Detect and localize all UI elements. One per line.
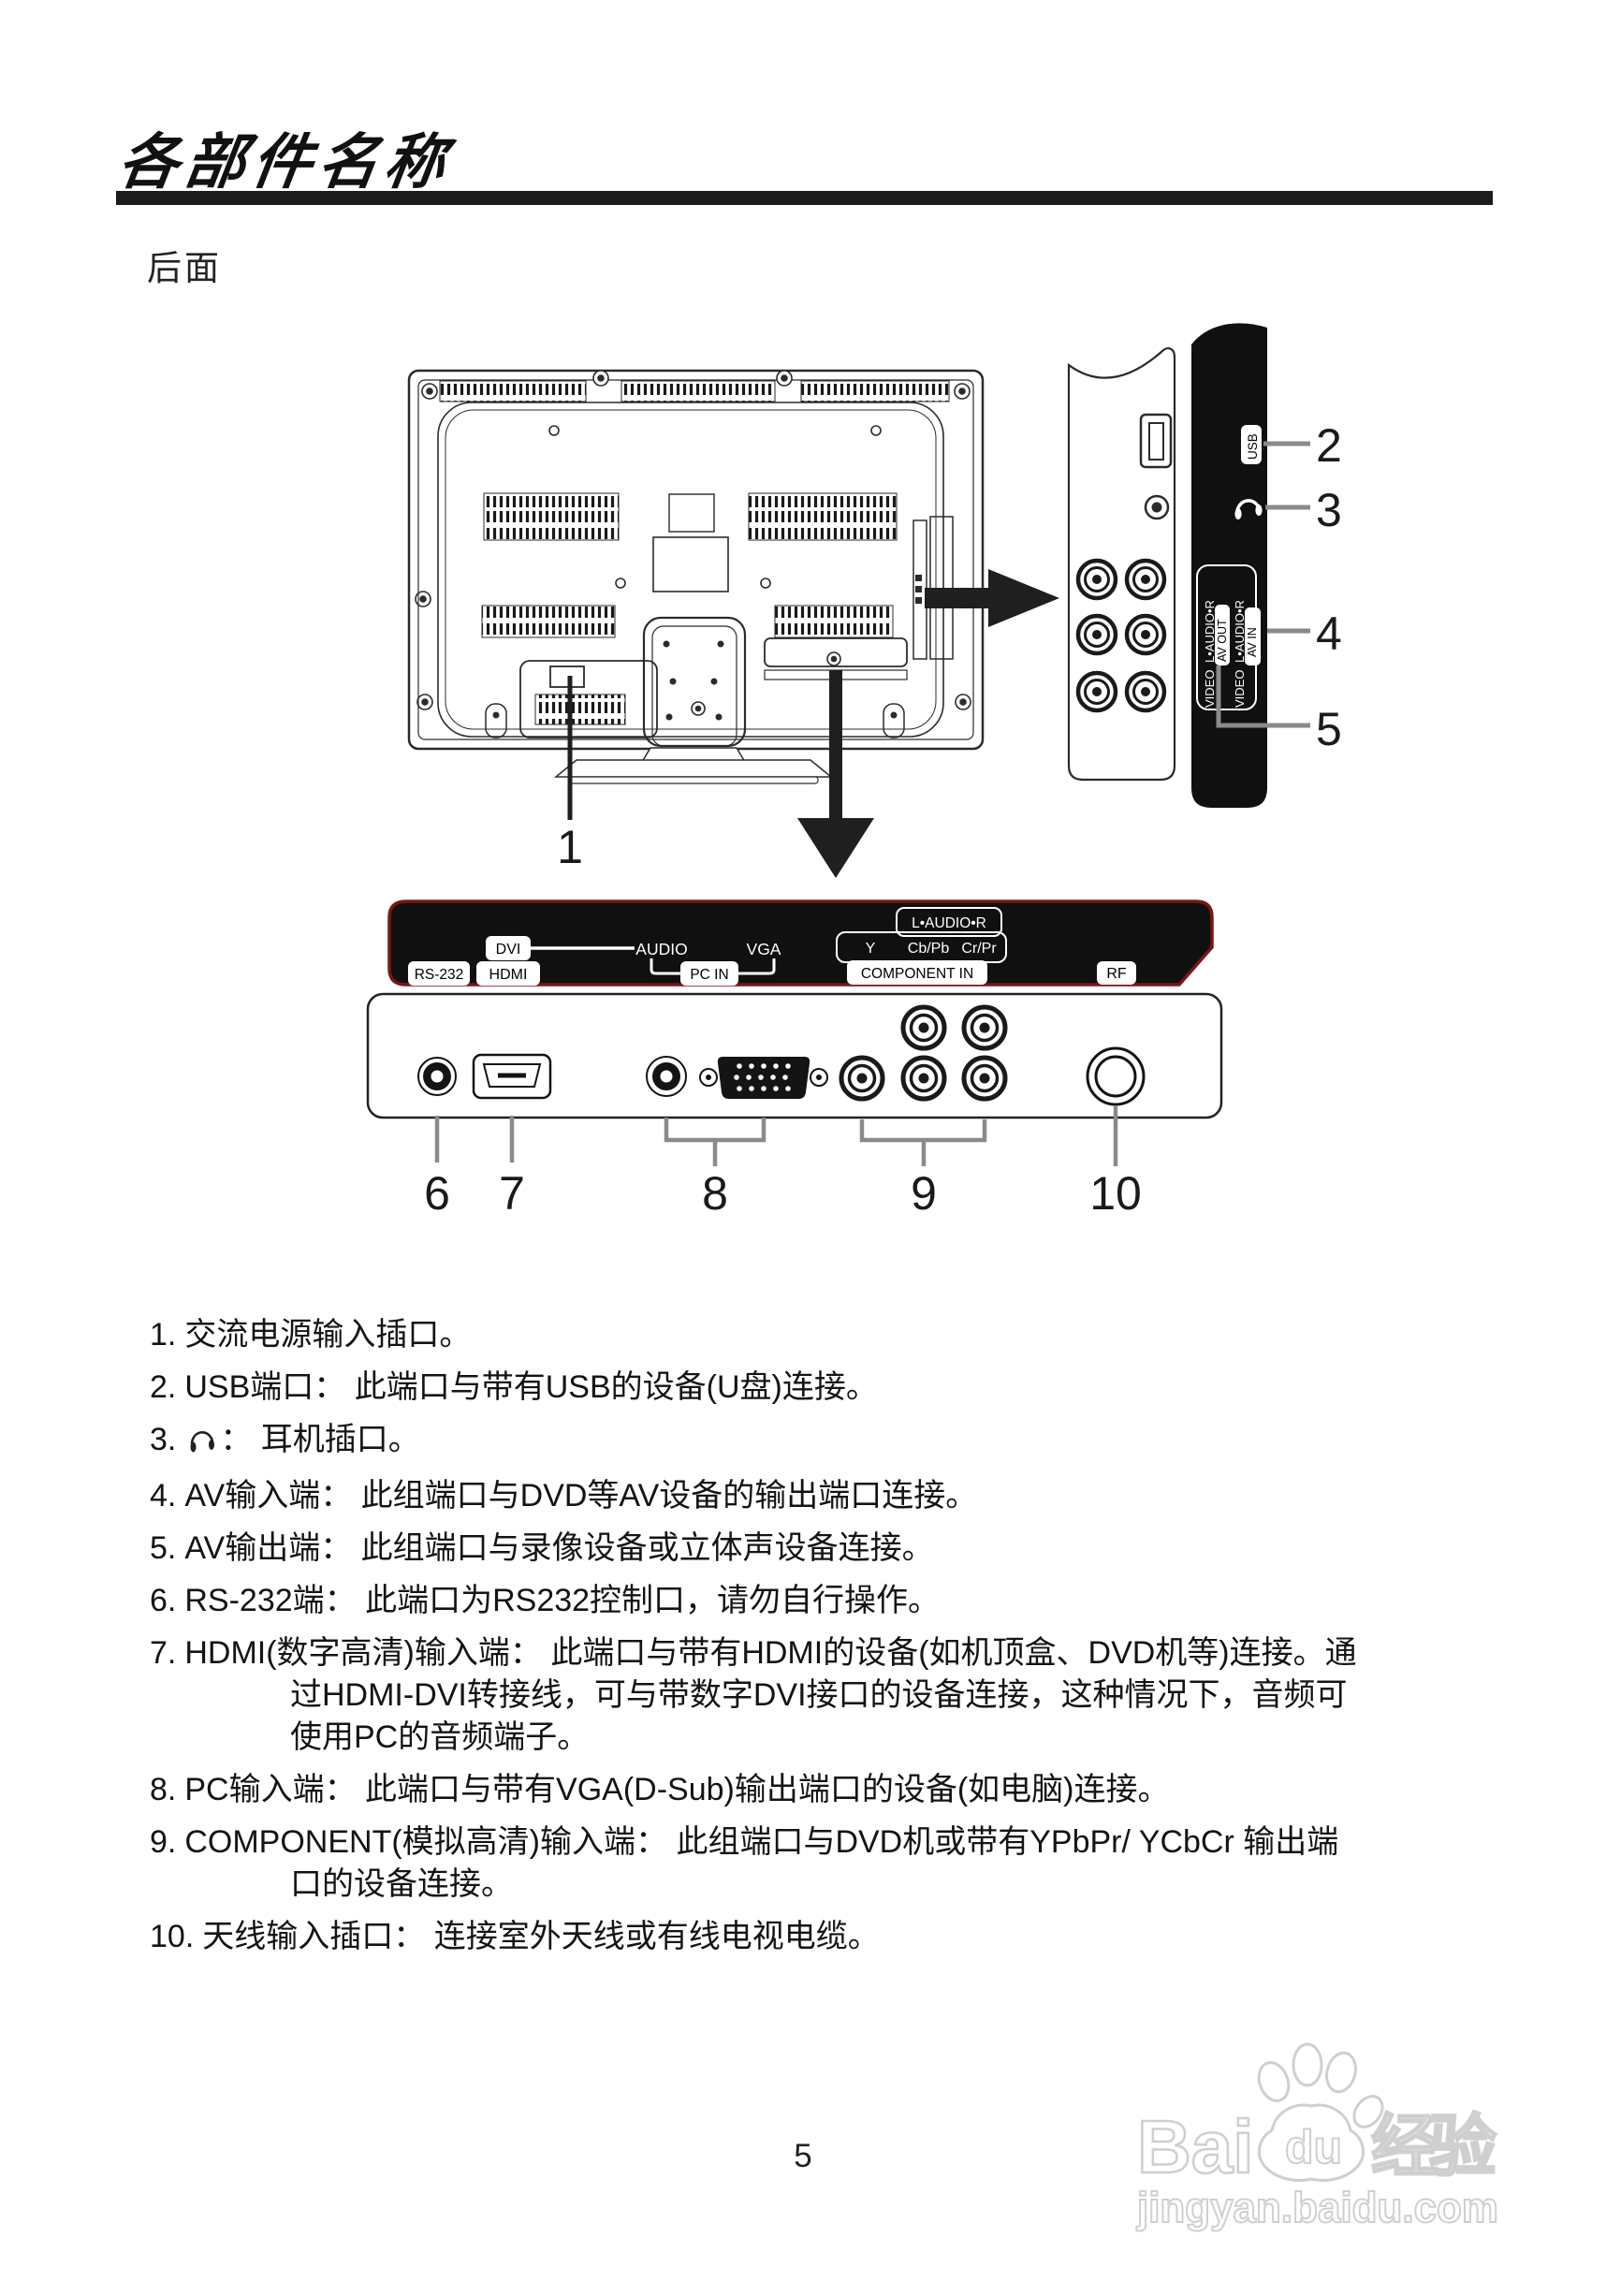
list-item: 9.COMPONENT(模拟高清)输入端： 此组端口与DVD机或带有YPbPr/… [150,1821,1535,1906]
dvi-label: DVI [496,942,521,958]
headphone-icon [188,1420,216,1465]
callout-8: 8 [702,1167,728,1220]
callout-2: 2 [1316,419,1342,472]
av-out-audio-label: L•AUDIO•R [1203,600,1217,663]
av-in-audio-label: L•AUDIO•R [1233,600,1247,663]
list-item: 6.RS-232端： 此端口为RS232控制口，请勿自行操作。 [150,1580,1535,1622]
list-item: 3.： 耳机插口。 [150,1419,1535,1465]
title-rule [116,191,1493,205]
list-item: 4.AV输入端： 此组端口与DVD等AV设备的输出端口连接。 [150,1475,1535,1517]
watermark-bai: Bai [1137,2105,1254,2188]
watermark-du: du [1285,2121,1342,2173]
page-title: 各部件名称 [114,114,459,200]
rs232-label: RS-232 [415,967,464,983]
bottom-label-panel: RS-232 HDMI DVI AUDIO VGA PC IN L•AUDIO•… [389,901,1212,986]
tv-back-drawing [409,371,983,783]
component-audio-label: L•AUDIO•R [912,915,986,931]
component-in-label: COMPONENT IN [861,966,973,982]
list-item: 7.HDMI(数字高清)输入端： 此端口与带有HDMI的设备(如机顶盒、DVD机… [150,1632,1535,1759]
callout-1: 1 [557,821,583,873]
callout-4: 4 [1316,607,1342,660]
top-vent-grilles [440,381,949,402]
list-item: 5.AV输出端： 此组端口与录像设备或立体声设备连接。 [150,1528,1535,1570]
av-out-label: AV OUT [1216,619,1229,662]
hdmi-label: HDMI [489,967,528,983]
bottom-connector-panel: 6 7 8 9 10 [368,994,1221,1220]
callout-6: 6 [424,1167,450,1220]
page-number: 5 [775,2138,831,2175]
callout-5: 5 [1316,703,1342,755]
callout-3: 3 [1316,484,1342,536]
tv-stand [556,748,831,783]
callout-9: 9 [911,1167,937,1220]
watermark-url: jingyan.baidu.com [1136,2184,1498,2231]
av-in-video-label: VIDEO [1233,670,1247,708]
list-item: 10.天线输入插口： 连接室外天线或有线电视电缆。 [150,1916,1535,1958]
audio-label: AUDIO [635,940,687,958]
rear-panel-diagram: 1 USB [0,300,1606,1245]
pc-in-label: PC IN [690,967,728,983]
pc-audio-jack [647,1057,686,1096]
component-y-label: Y [866,941,876,957]
rs232-jack [418,1058,456,1095]
av-in-label: AV IN [1246,627,1259,657]
section-label-rear: 后面 [147,240,222,290]
av-out-video-label: VIDEO [1203,670,1217,708]
baidu-jingyan-watermark: Bai du 经验 jingyan.baidu.com [1135,2037,1543,2239]
watermark-cn: 经验 [1371,2110,1496,2185]
component-cb-label: Cb/Pb [908,941,950,957]
list-item: 8.PC输入端： 此端口与带有VGA(D-Sub)输出端口的设备(如电脑)连接。 [150,1769,1535,1811]
list-item: 2.USB端口： 此端口与带有USB的设备(U盘)连接。 [150,1367,1535,1409]
vga-label: VGA [747,940,781,958]
callout-10: 10 [1089,1167,1142,1220]
callout-7: 7 [499,1167,525,1220]
side-panel-detail: USB L•AUDIO•R VIDEO AV OUT L•AUDIO•R VID… [1069,323,1342,808]
manual-page: 各部件名称 后面 [0,0,1606,2296]
component-cr-label: Cr/Pr [961,941,997,957]
usb-label: USB [1246,433,1260,460]
rf-label: RF [1106,966,1127,982]
list-item: 1.交流电源输入插口。 [150,1314,1535,1356]
parts-description-list: 1.交流电源输入插口。 2.USB端口： 此端口与带有USB的设备(U盘)连接。… [150,1314,1535,1968]
